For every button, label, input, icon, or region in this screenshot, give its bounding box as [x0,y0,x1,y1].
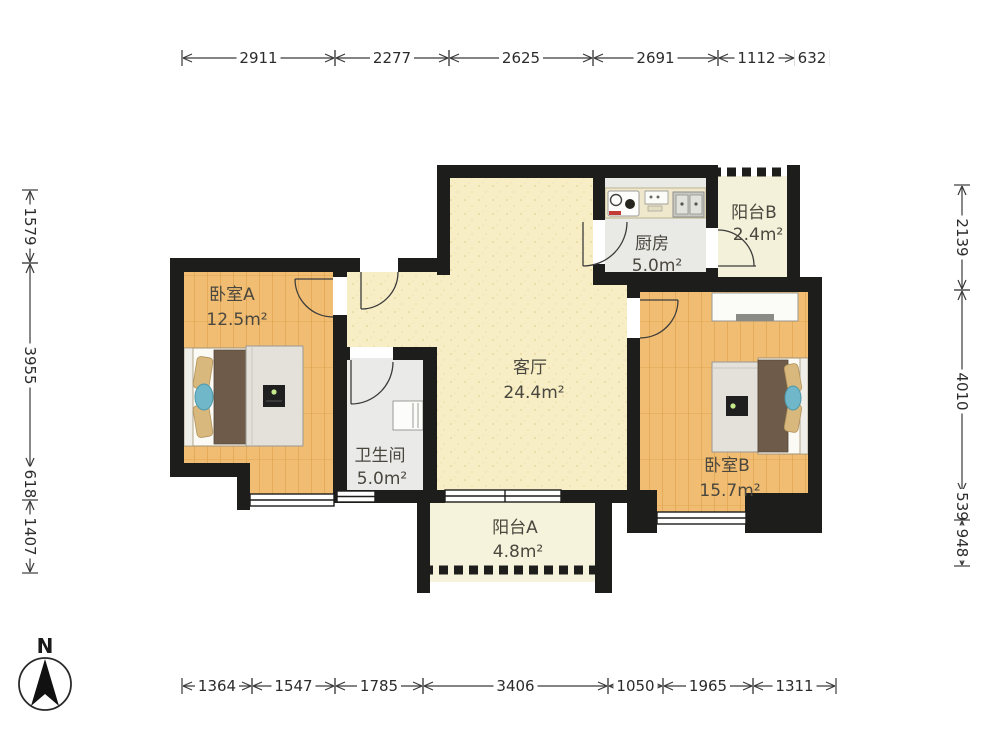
room-area-bedroom-a: 12.5m² [206,310,267,330]
desk-b [712,293,798,321]
dimension-label: 2139 [953,218,971,256]
dimension-segment-bottom-4: 1050 [608,677,663,695]
kitchen-counter [605,188,706,218]
dimension-label: 1547 [274,677,312,695]
dimension-segment-top-5: 632 [795,49,830,67]
room-label-living-room: 客厅 [513,358,547,378]
room-area-balcony-b: 2.4m² [733,225,783,245]
dimension-segment-right-1: 4010 [953,290,971,493]
dimension-segment-left-2: 618 [21,467,39,502]
bedroom-b-window [657,512,746,524]
room-area-bedroom-b: 15.7m² [699,481,760,501]
dimension-segment-right-0: 2139 [953,185,971,290]
dimension-label: 1112 [737,49,775,67]
dimension-label: 1407 [21,517,39,555]
room-label-balcony-a: 阳台A [492,518,538,538]
dimension-label: 3955 [21,346,39,384]
dimension-label: 2691 [636,49,674,67]
dimension-label: 1785 [360,677,398,695]
dimension-label: 1965 [689,677,727,695]
room-label-kitchen: 厨房 [635,234,669,254]
north-label: N [37,634,54,658]
floor-plan: 卧室A 12.5m² 卫生间 5.0m² 厨房 5.0m² 阳台B 2.4m² … [0,0,1000,750]
dimension-segment-top-0: 2911 [182,49,335,67]
dimension-label: 1579 [21,207,39,245]
dimension-label: 1311 [775,677,813,695]
dimension-label: 618 [21,470,39,499]
dimension-label: 632 [798,49,827,67]
room-area-bathroom: 5.0m² [357,469,407,489]
dimension-segment-bottom-0: 1364 [182,677,252,695]
dimension-segment-left-1: 3955 [21,263,39,468]
bedroom-a-window [250,494,334,506]
bed-a [184,348,246,446]
room-area-kitchen: 5.0m² [632,256,682,276]
dimension-segment-right-2: 539 [953,489,971,524]
washing-machine-icon [393,401,423,430]
dimension-label: 2911 [239,49,277,67]
balcony-a-sliding-window [445,490,561,502]
dimension-segment-bottom-5: 1965 [663,677,753,695]
dimension-label: 4010 [953,372,971,410]
dimension-label: 1050 [616,677,654,695]
bed-b [758,358,808,454]
bathroom-window [337,491,375,502]
dimension-label: 3406 [496,677,534,695]
dimension-label: 948 [953,529,971,558]
tv-panel-a [263,385,285,407]
dimension-segment-top-1: 2277 [335,49,449,67]
room-label-balcony-b: 阳台B [731,203,777,223]
tv-panel-b [726,396,748,416]
dimension-segment-bottom-1: 1547 [252,677,335,695]
floor-plan-page: 卧室A 12.5m² 卫生间 5.0m² 厨房 5.0m² 阳台B 2.4m² … [0,0,1000,750]
sink-icon [673,192,704,217]
room-area-living-room: 24.4m² [503,383,564,403]
dimension-segment-bottom-2: 1785 [335,677,423,695]
stove-icon [608,191,639,216]
room-label-bathroom: 卫生间 [355,446,406,466]
room-area-balcony-a: 4.8m² [493,542,543,562]
dimension-segment-left-0: 1579 [21,190,39,263]
room-label-bedroom-b: 卧室B [704,456,750,476]
wardrobe-a [246,346,303,446]
dimension-segment-top-2: 2625 [449,49,593,67]
dimension-segment-bottom-3: 3406 [423,677,608,695]
dimension-segment-top-3: 2691 [593,49,718,67]
dimension-label: 1364 [198,677,236,695]
room-label-bedroom-a: 卧室A [209,285,255,305]
dimension-segment-right-3: 948 [953,520,971,566]
dimension-segment-bottom-6: 1311 [753,677,836,695]
dimension-label: 539 [953,492,971,521]
dimension-label: 2625 [502,49,540,67]
dimension-segment-left-3: 1407 [21,500,39,573]
dimension-label: 2277 [373,49,411,67]
wardrobe-b [712,362,758,452]
north-arrow-icon: N [19,634,71,710]
dimension-segment-top-4: 1112 [718,49,795,67]
